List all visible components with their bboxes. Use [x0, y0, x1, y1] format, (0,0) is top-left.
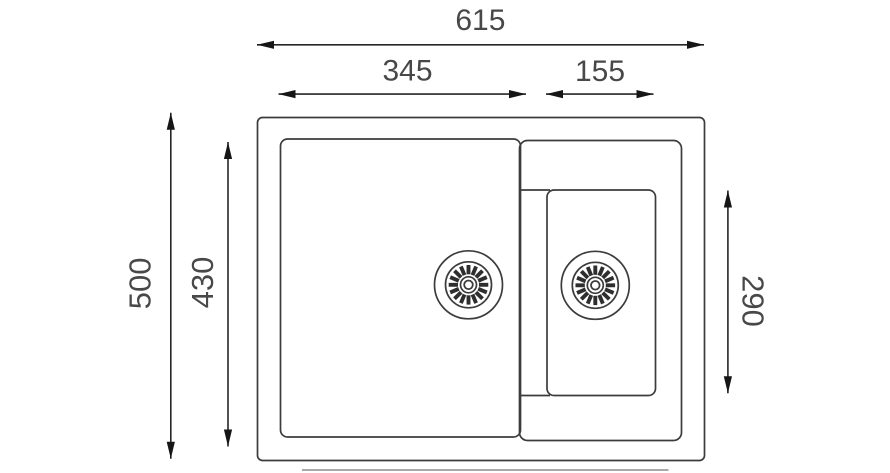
svg-text:345: 345 — [382, 55, 432, 88]
svg-text:500: 500 — [122, 258, 157, 310]
svg-text:155: 155 — [575, 55, 625, 88]
svg-text:615: 615 — [455, 4, 505, 37]
svg-text:290: 290 — [735, 275, 770, 327]
svg-text:430: 430 — [185, 257, 220, 309]
